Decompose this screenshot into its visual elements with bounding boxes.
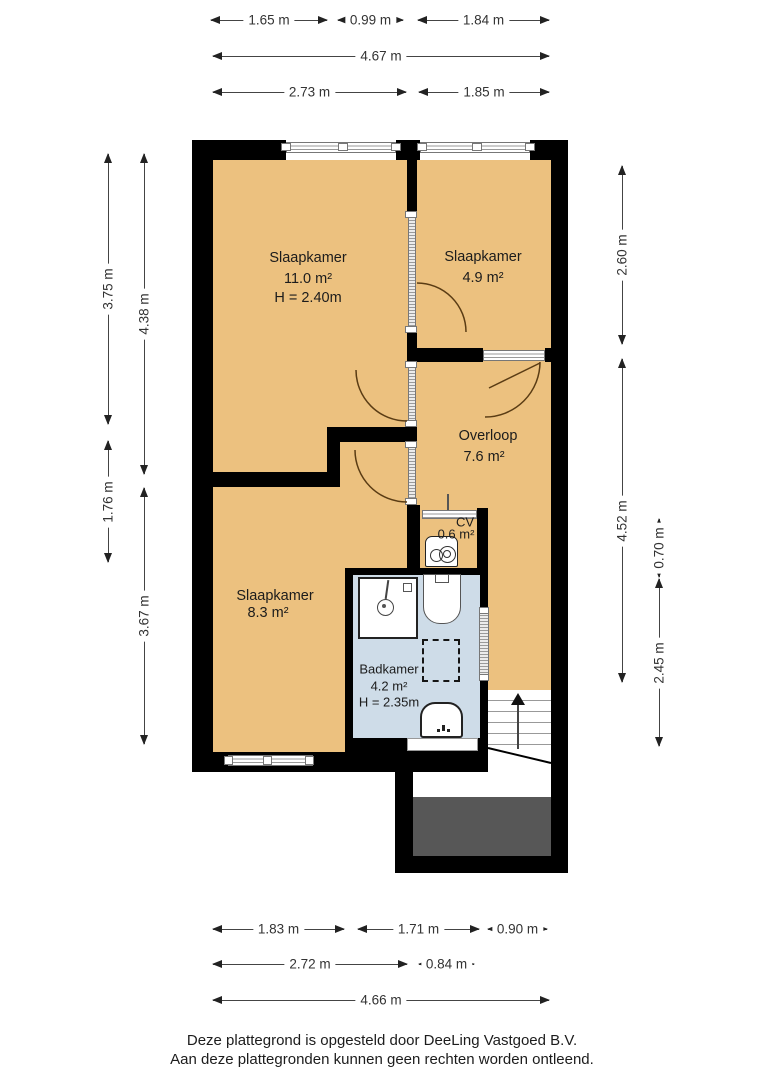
floorplan-canvas: 1.65 m 0.99 m 1.84 m 4.67 m 2.73 m 1.85 … [0, 0, 764, 1080]
room-area-cv: 0.6 m² [438, 527, 475, 542]
door-arc-bedroom2 [417, 283, 466, 332]
room-height-bathroom: H = 2.35m [359, 695, 419, 710]
room-area-bedroom1: 11.0 m² [284, 271, 332, 287]
room-area-bathroom: 4.2 m² [371, 679, 408, 694]
room-name-bathroom: Badkamer [359, 662, 418, 677]
room-area-bedroom3: 8.3 m² [247, 605, 288, 621]
plan-linework [0, 0, 764, 1080]
room-name-bedroom3: Slaapkamer [236, 588, 313, 604]
room-height-bedroom1: H = 2.40m [274, 290, 341, 306]
door-arc-bedroom3 [355, 450, 407, 502]
room-name-bedroom1: Slaapkamer [269, 250, 346, 266]
door-arc-bedroom1 [356, 370, 407, 421]
room-name-bedroom2: Slaapkamer [444, 249, 521, 265]
door-arc-landing [485, 362, 540, 417]
footer-disclaimer-line1: Deze plattegrond is opgesteld door DeeLi… [0, 1032, 764, 1049]
room-area-bedroom2: 4.9 m² [462, 270, 503, 286]
room-area-landing: 7.6 m² [463, 449, 504, 465]
footer-disclaimer-line2: Aan deze plattegronden kunnen geen recht… [0, 1051, 764, 1068]
stair-break-line [488, 748, 551, 763]
room-name-landing: Overloop [459, 428, 518, 444]
door-leaf-landing [489, 363, 540, 388]
